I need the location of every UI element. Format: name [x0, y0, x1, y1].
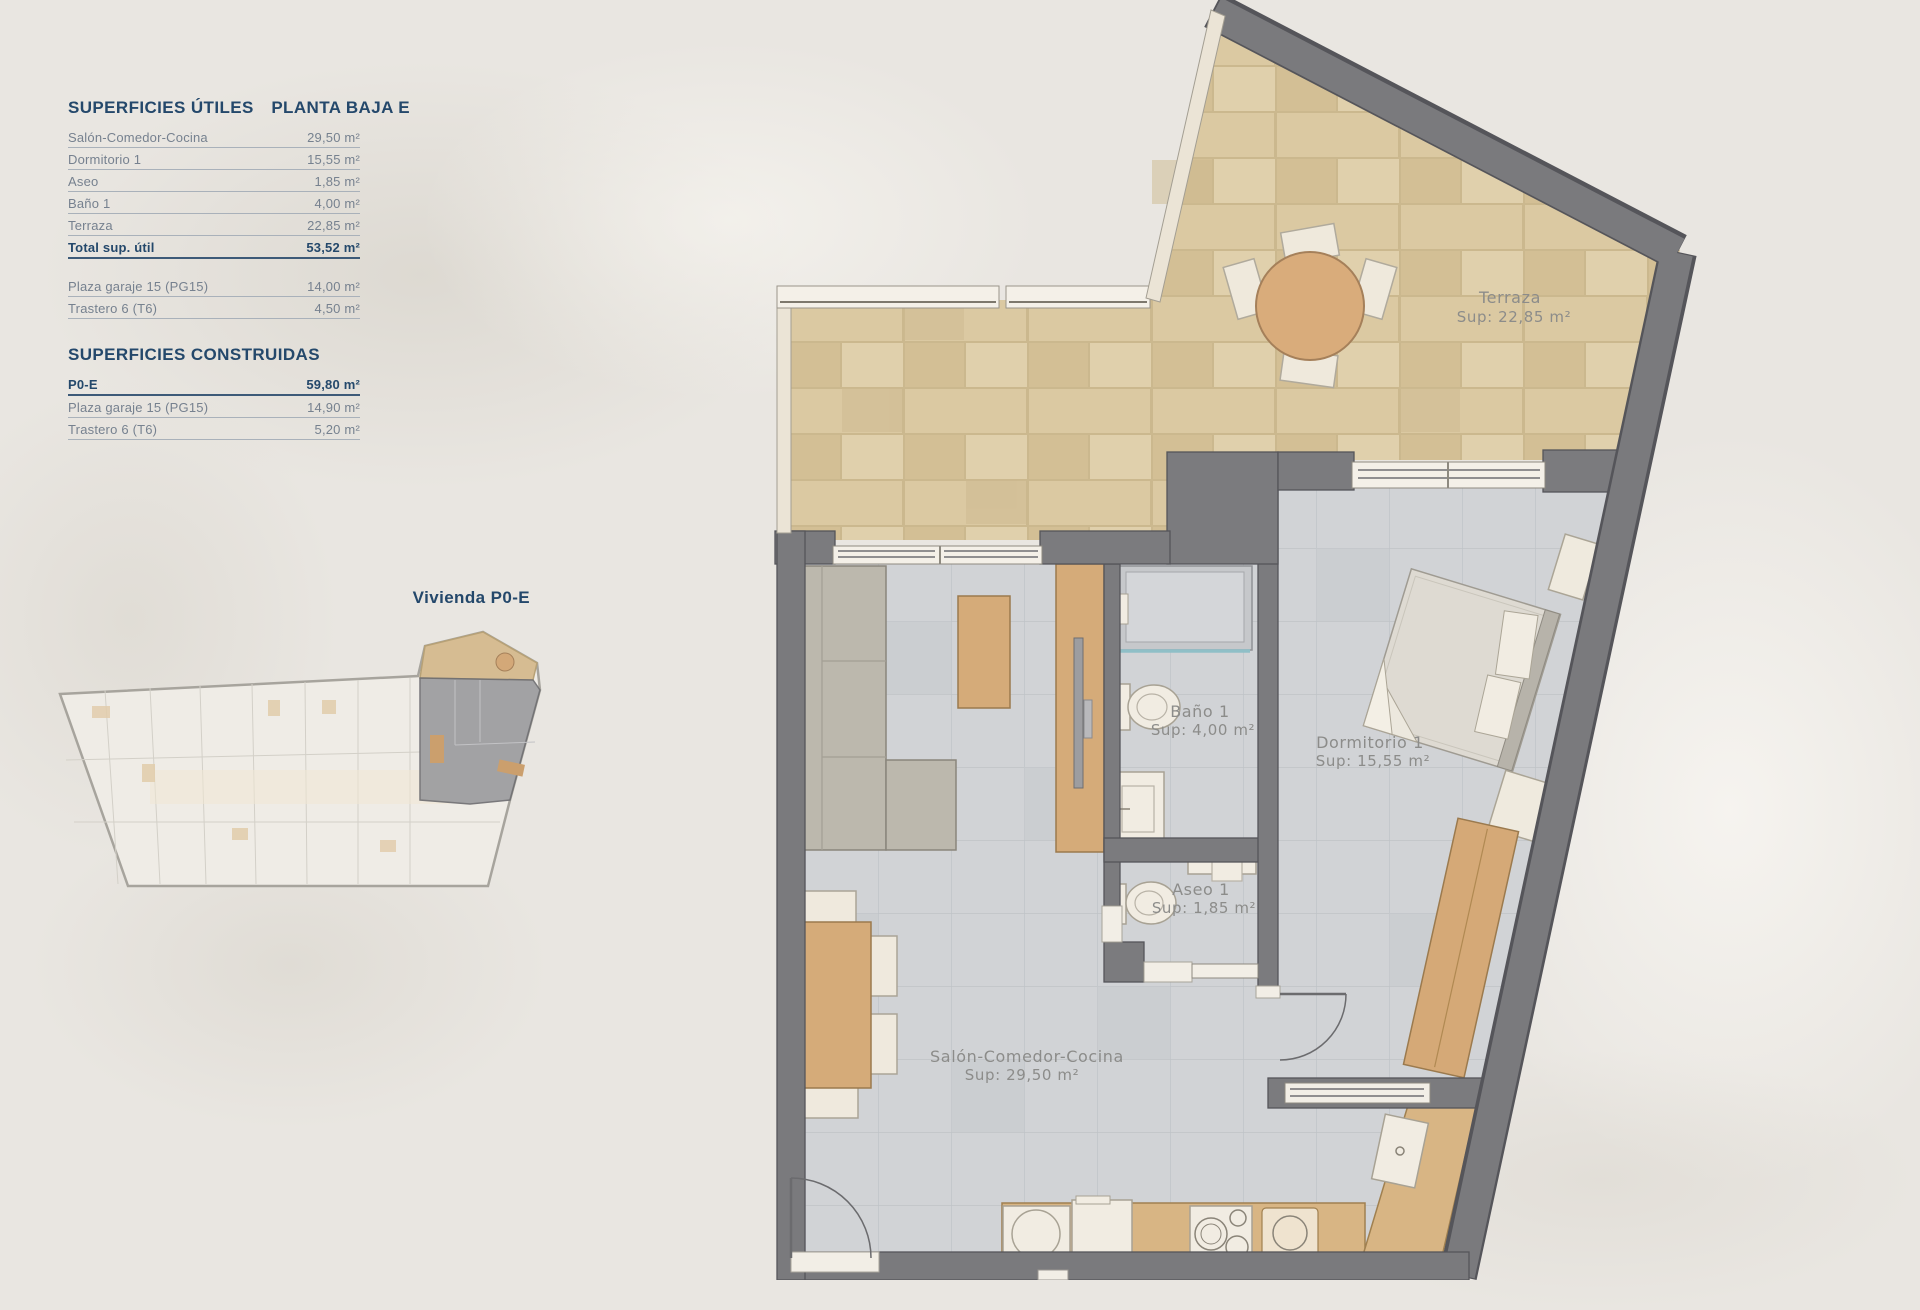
row-label: Plaza garaje 15 (PG15)	[68, 279, 208, 294]
bath-door-threshold	[1102, 906, 1122, 942]
tv-bracket	[1084, 700, 1092, 738]
bedroom-label: Dormitorio 1	[1316, 733, 1424, 752]
entrance-threshold	[791, 1252, 879, 1272]
row-value: 59,80 m²	[306, 377, 360, 392]
mini-building-plan	[60, 632, 540, 886]
coffee-table	[958, 596, 1010, 708]
row-label: Trastero 6 (T6)	[68, 422, 157, 437]
aseo-door-threshold	[1144, 962, 1192, 982]
row-label: Salón-Comedor-Cocina	[68, 130, 208, 145]
wall-bottom	[779, 1252, 1469, 1280]
shower-handle	[1120, 594, 1128, 624]
row-value: 15,55 m²	[307, 152, 360, 167]
wall-aseo-corner	[1104, 942, 1144, 982]
main-floor-plan: Terraza Sup: 22,85 m² Baño 1 Sup: 4,00 m…	[775, 8, 1680, 1280]
wall-bath-aseo	[1104, 838, 1274, 862]
dining-chair	[869, 1014, 897, 1074]
dining-chair	[802, 1086, 858, 1118]
row-label: P0-E	[68, 377, 98, 392]
row-label: Terraza	[68, 218, 113, 233]
kitchen-sink	[1262, 1208, 1318, 1258]
row-value: 53,52 m²	[306, 240, 360, 255]
row-label: Dormitorio 1	[68, 152, 141, 167]
table-row: Salón-Comedor-Cocina 29,50 m²	[68, 126, 360, 148]
floor-plan-sheet: Terraza Sup: 22,85 m² Baño 1 Sup: 4,00 m…	[0, 0, 1920, 1280]
dining-chair	[869, 936, 897, 996]
bottom-wall-detail	[1038, 1270, 1068, 1280]
mini-unit-terrace	[420, 632, 537, 680]
bedroom-area: Sup: 15,55 m²	[1316, 752, 1431, 770]
utiles-rows: Salón-Comedor-Cocina 29,50 m² Dormitorio…	[68, 126, 360, 319]
table-row: Baño 1 4,00 m²	[68, 192, 360, 214]
table-row: Terraza 22,85 m²	[68, 214, 360, 236]
table-row: Dormitorio 1 15,55 m²	[68, 148, 360, 170]
terrace-railing	[1006, 286, 1150, 308]
table-spacer	[68, 259, 360, 275]
aseo-area: Sup: 1,85 m²	[1152, 899, 1256, 917]
terrace-label: Terraza	[1478, 288, 1541, 307]
unit-row: P0-E 59,80 m²	[68, 373, 360, 396]
row-label: Aseo	[68, 174, 98, 189]
terrace-left-wall	[777, 293, 791, 533]
row-value: 14,00 m²	[307, 279, 360, 294]
living-area: Sup: 29,50 m²	[965, 1066, 1080, 1084]
row-value: 14,90 m²	[307, 400, 360, 415]
unit-overview-caption: Vivienda P0-E	[270, 588, 530, 608]
utiles-title: SUPERFICIES ÚTILES	[68, 98, 254, 118]
terrace-area: Sup: 22,85 m²	[1457, 308, 1572, 326]
bedroom-kitchen-glazing	[1285, 1083, 1430, 1103]
mini-unit-wood	[430, 735, 444, 763]
row-label: Baño 1	[68, 196, 110, 211]
surfaces-table: SUPERFICIES ÚTILES PLANTA BAJA E Salón-C…	[68, 98, 410, 440]
bedroom-door-threshold	[1256, 986, 1280, 998]
construidas-rows: P0-E 59,80 m² Plaza garaje 15 (PG15) 14,…	[68, 373, 360, 440]
construidas-title: SUPERFICIES CONSTRUIDAS	[68, 345, 410, 365]
surfaces-table-header: SUPERFICIES ÚTILES PLANTA BAJA E	[68, 98, 410, 118]
row-value: 5,20 m²	[315, 422, 360, 437]
row-value: 1,85 m²	[315, 174, 360, 189]
dining-chair	[800, 891, 856, 923]
cabinet-handle	[1076, 1196, 1110, 1204]
table-row: Trastero 6 (T6) 5,20 m²	[68, 418, 360, 440]
wall-living-top-right	[1040, 531, 1170, 564]
terrace-round-table	[1256, 252, 1364, 360]
mini-corridor	[150, 770, 450, 804]
row-value: 4,00 m²	[315, 196, 360, 211]
wall-terrace-corner-block	[1167, 452, 1278, 564]
table-row: Plaza garaje 15 (PG15) 14,90 m²	[68, 396, 360, 418]
row-value: 22,85 m²	[307, 218, 360, 233]
tv-unit	[1056, 564, 1104, 852]
terrace-railing	[777, 286, 999, 308]
row-value: 4,50 m²	[315, 301, 360, 316]
total-row: Total sup. útil 53,52 m²	[68, 236, 360, 259]
row-label: Total sup. útil	[68, 240, 155, 255]
living-label: Salón-Comedor-Cocina	[930, 1047, 1124, 1066]
table-row: Aseo 1,85 m²	[68, 170, 360, 192]
bedroom-terrace-window	[1352, 462, 1545, 488]
aseo-low-partition	[1192, 964, 1258, 978]
table-row: Trastero 6 (T6) 4,50 m²	[68, 297, 360, 319]
plan-label: PLANTA BAJA E	[271, 98, 410, 118]
row-label: Trastero 6 (T6)	[68, 301, 157, 316]
wall-left	[777, 531, 805, 1280]
mini-terrace-table	[496, 653, 514, 671]
shower-tray-inner	[1126, 572, 1244, 642]
tv-screen	[1074, 638, 1083, 788]
row-label: Plaza garaje 15 (PG15)	[68, 400, 208, 415]
aseo-label: Aseo 1	[1172, 880, 1230, 899]
table-row: Plaza garaje 15 (PG15) 14,00 m²	[68, 275, 360, 297]
wall-bedroom-top-left	[1278, 452, 1354, 490]
row-value: 29,50 m²	[307, 130, 360, 145]
living-terrace-window	[833, 546, 1042, 564]
bathroom-area: Sup: 4,00 m²	[1151, 721, 1255, 739]
bathroom-label: Baño 1	[1170, 702, 1230, 721]
